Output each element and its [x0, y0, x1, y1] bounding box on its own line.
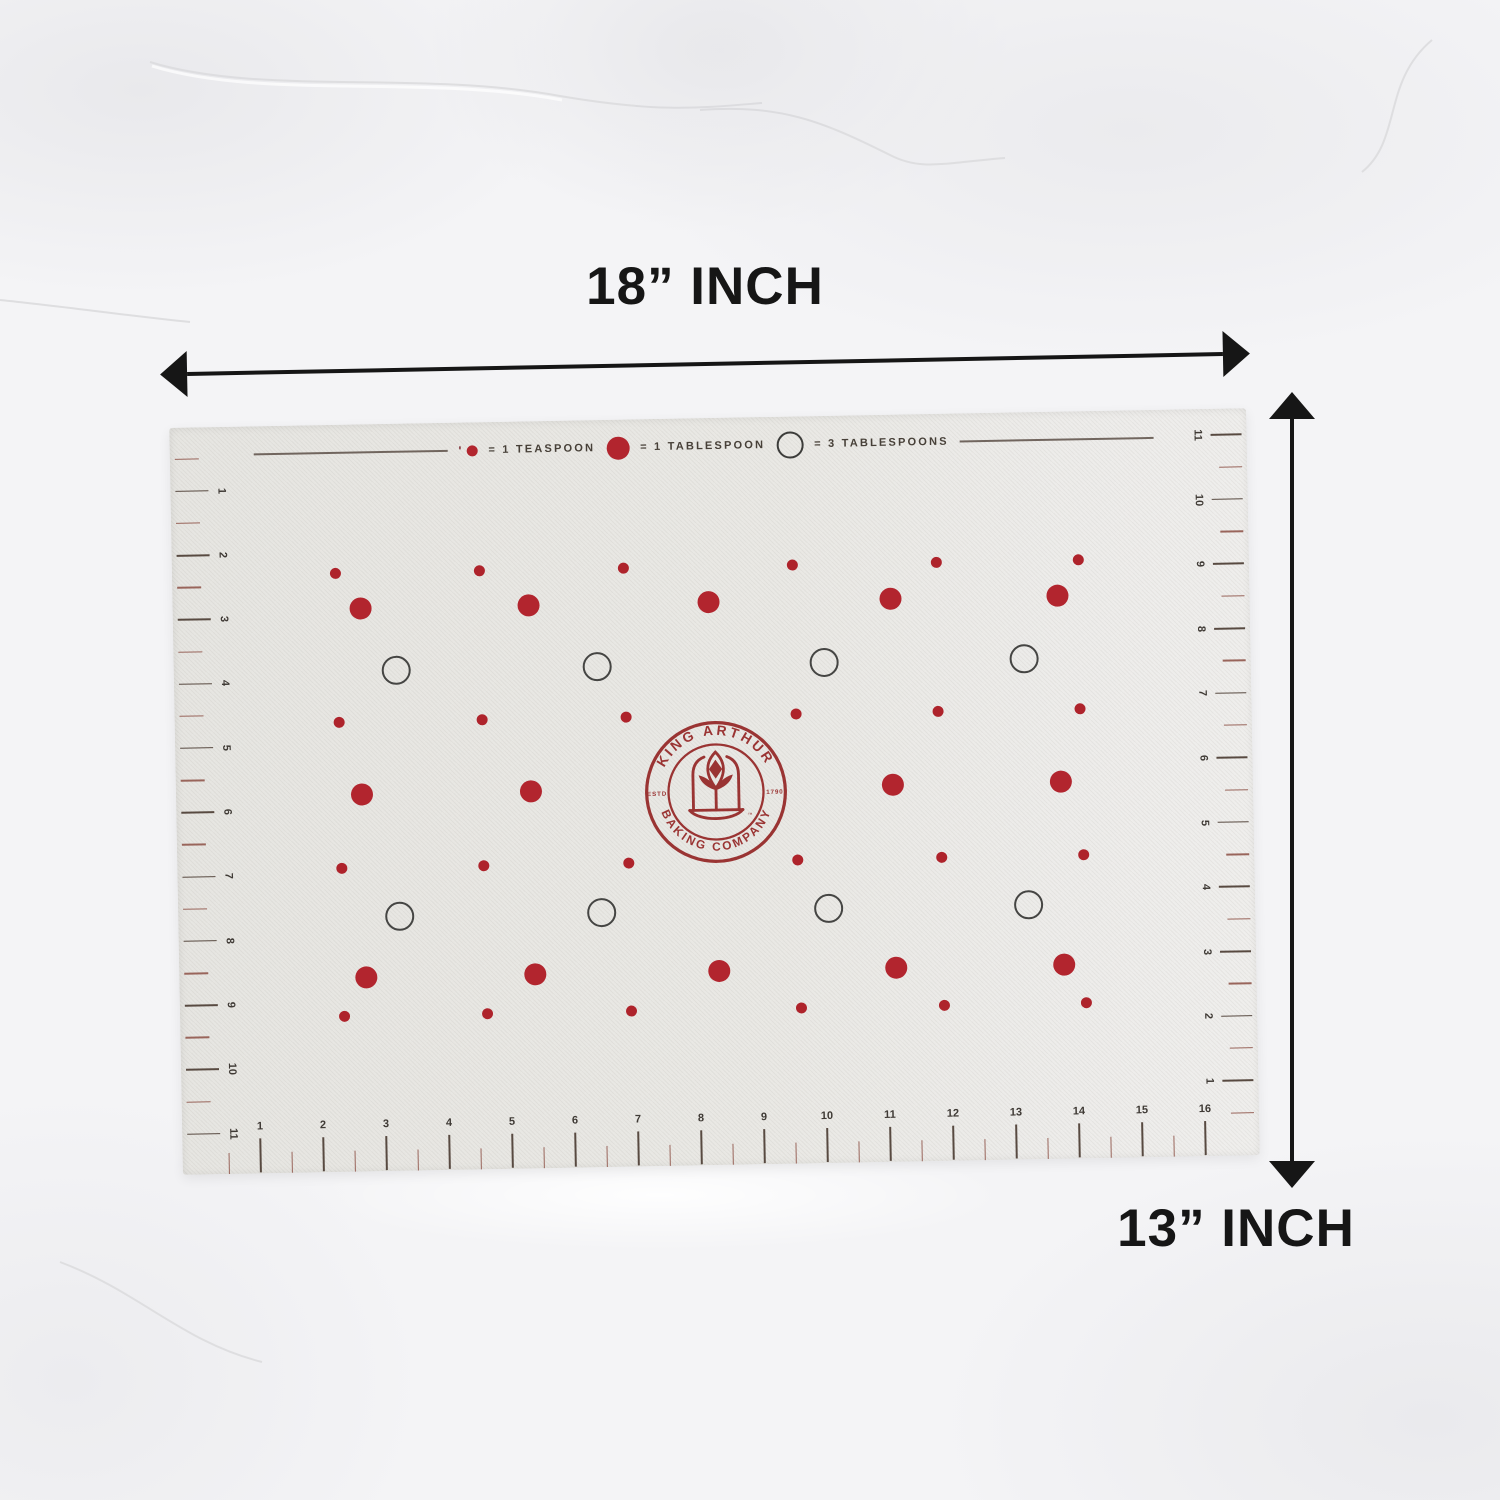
- ruler-number: 3: [1199, 943, 1215, 961]
- ruler-tick-minor: [185, 1037, 209, 1039]
- medium-dot: [524, 963, 546, 985]
- medium-dot: [517, 594, 539, 616]
- ruler-number: 7: [220, 867, 236, 885]
- ruler-tick-major: [187, 1133, 220, 1135]
- ruler-tick-minor: [732, 1144, 734, 1165]
- ruler-tick-minor: [1230, 1047, 1253, 1049]
- circle-dot: [1009, 644, 1039, 674]
- medium-dot: [355, 966, 377, 988]
- ruler-tick-minor: [176, 522, 200, 524]
- three-tablespoons-label: = 3 TABLESPOONS: [814, 436, 949, 450]
- ruler-number: 9: [755, 1109, 773, 1125]
- ruler-tick-minor: [1221, 595, 1244, 597]
- teaspoon-dot-icon: [466, 445, 477, 456]
- medium-dot: [1050, 770, 1072, 792]
- ruler-tick-minor: [480, 1148, 482, 1169]
- ruler-tick-major: [826, 1128, 828, 1162]
- ruler-tick-major: [1218, 821, 1249, 823]
- ruler-tick-minor: [291, 1152, 293, 1173]
- ruler-number: 7: [1194, 684, 1210, 702]
- medium-dot: [1053, 953, 1075, 975]
- small-dot: [625, 1005, 636, 1016]
- arrow-shaft: [1290, 419, 1294, 1161]
- ruler-tick-major: [1216, 756, 1247, 758]
- pastry-mat: ' = 1 TEASPOON = 1 TABLESPOON = 3 TABLES…: [169, 408, 1260, 1175]
- ruler-number: 2: [1200, 1007, 1216, 1025]
- ruler-number: 2: [214, 546, 230, 564]
- ruler-number: 7: [629, 1111, 647, 1127]
- medium-dot: [885, 956, 907, 978]
- small-dot: [476, 714, 487, 725]
- ruler-tick-minor: [1231, 1112, 1254, 1114]
- small-dot: [1080, 997, 1091, 1008]
- arrow-right-head-icon: [1222, 331, 1250, 378]
- ruler-tick-major: [323, 1137, 325, 1171]
- ruler-tick-major: [178, 619, 211, 621]
- ruler-tick-minor: [984, 1139, 986, 1160]
- ruler-tick-minor: [1219, 466, 1242, 468]
- ruler-tick-major: [574, 1133, 576, 1167]
- ruler-tick-minor: [183, 908, 207, 910]
- medium-dot: [520, 780, 542, 802]
- height-dimension-label: 13” INCH: [1090, 1198, 1382, 1259]
- ruler-number: 12: [944, 1106, 962, 1122]
- ruler-number: 4: [217, 674, 233, 692]
- ruler-tick-major: [1222, 1079, 1253, 1081]
- ruler-number: 11: [225, 1124, 241, 1142]
- ruler-tick-major: [181, 811, 214, 813]
- king-arthur-logo: KING ARTHUR BAKING COMPANY ESTD 1790 ™: [639, 715, 794, 870]
- logo-estd-text: ESTD: [647, 791, 667, 798]
- circle-dot: [586, 897, 616, 927]
- small-dot: [1072, 554, 1083, 565]
- ruler-tick-minor: [180, 715, 204, 717]
- ruler-tick-major: [180, 747, 213, 749]
- ruler-tick-minor: [1110, 1137, 1112, 1158]
- ruler-number: 8: [1193, 620, 1209, 638]
- ruler-tick-minor: [1224, 724, 1247, 726]
- product-photo-canvas: { "dimensions": { "width_label": "18\u20…: [0, 0, 1500, 1500]
- medium-dot: [882, 774, 904, 796]
- small-dot: [938, 999, 949, 1010]
- ruler-number: 5: [1196, 813, 1212, 831]
- ruler-tick-minor: [175, 458, 199, 460]
- ruler-tick-major: [182, 876, 215, 878]
- ruler-tick-minor: [1229, 983, 1252, 985]
- ruler-tick-major: [175, 490, 208, 492]
- ruler-number: 3: [216, 610, 232, 628]
- ruler-tick-major: [448, 1135, 450, 1169]
- small-dot: [936, 851, 947, 862]
- tablespoon-label: = 1 TABLESPOON: [640, 439, 765, 453]
- ruler-left: 1234567891011: [169, 408, 1246, 428]
- ruler-number: 2: [314, 1117, 332, 1133]
- small-dot: [336, 862, 347, 873]
- ruler-tick-major: [260, 1138, 262, 1172]
- small-dot: [930, 556, 941, 567]
- ruler-tick-major: [179, 683, 212, 685]
- ruler-tick-major: [511, 1134, 513, 1168]
- ruler-number: 6: [1195, 749, 1211, 767]
- ruler-number: 8: [221, 931, 237, 949]
- small-dot: [932, 705, 943, 716]
- ruler-number: 8: [692, 1110, 710, 1126]
- ruler-tick-major: [1015, 1125, 1017, 1159]
- ruler-number: 10: [224, 1060, 240, 1078]
- ruler-tick-major: [184, 940, 217, 942]
- ruler-tick-major: [1078, 1123, 1080, 1157]
- measurement-legend: ' = 1 TEASPOON = 1 TABLESPOON = 3 TABLES…: [254, 425, 1154, 467]
- ruler-number: 1: [213, 481, 229, 499]
- ruler-tick-major: [185, 1004, 218, 1006]
- ruler-tick-major: [637, 1131, 639, 1165]
- ruler-tick-minor: [543, 1147, 545, 1168]
- small-dot: [338, 1010, 349, 1021]
- ruler-number: 6: [566, 1112, 584, 1128]
- small-dot: [473, 565, 484, 576]
- ruler-tick-minor: [1047, 1138, 1049, 1159]
- ruler-tick-major: [1221, 1015, 1252, 1017]
- ruler-tick-major: [1214, 627, 1245, 629]
- ruler-bottom: 12345678910111213141516: [169, 408, 1246, 428]
- ruler-tick-minor: [228, 1153, 230, 1174]
- medium-dot: [351, 783, 373, 805]
- ruler-tick-minor: [1223, 660, 1246, 662]
- small-dot: [790, 708, 801, 719]
- ruler-tick-minor: [184, 972, 208, 974]
- small-dot: [795, 1002, 806, 1013]
- ruler-number: 4: [1198, 878, 1214, 896]
- legend-left-line: [254, 450, 448, 455]
- arrow-down-head-icon: [1269, 1161, 1315, 1188]
- medium-dot: [879, 588, 901, 610]
- circle-dot: [809, 647, 839, 677]
- ruler-number: 1: [1201, 1072, 1217, 1090]
- small-dot: [623, 857, 634, 868]
- ruler-tick-major: [386, 1136, 388, 1170]
- ruler-number: 1: [251, 1118, 269, 1134]
- logo-year-text: 1790: [766, 789, 784, 796]
- ruler-number: 11: [881, 1107, 899, 1123]
- ruler-tick-minor: [417, 1149, 419, 1170]
- ruler-tick-minor: [181, 779, 205, 781]
- height-dimension-arrow: [1266, 392, 1318, 1188]
- circle-dot: [582, 651, 612, 681]
- ruler-tick-major: [1204, 1121, 1206, 1155]
- ruler-number: 13: [1007, 1104, 1025, 1120]
- ruler-tick-minor: [187, 1101, 211, 1103]
- ruler-tick-minor: [1226, 853, 1249, 855]
- ruler-number: 11: [1189, 426, 1205, 444]
- ruler-number: 4: [440, 1115, 458, 1131]
- ruler-tick-minor: [177, 587, 201, 589]
- ruler-number: 5: [218, 738, 234, 756]
- circle-dot: [1013, 890, 1043, 920]
- ruler-number: 16: [1196, 1101, 1214, 1117]
- width-dimension-label: 18” INCH: [160, 256, 1250, 317]
- arrow-up-head-icon: [1269, 392, 1315, 419]
- tablespoon-dot-icon: [606, 436, 629, 459]
- arrow-shaft: [187, 352, 1223, 376]
- ruler-tick-minor: [354, 1151, 356, 1172]
- small-dot: [617, 562, 628, 573]
- legend-tick-mark: ': [458, 444, 461, 458]
- ruler-tick-major: [1212, 498, 1243, 500]
- ruler-tick-major: [177, 554, 210, 556]
- medium-dot: [349, 597, 371, 619]
- ruler-number: 9: [1192, 555, 1208, 573]
- ruler-tick-minor: [178, 651, 202, 653]
- medium-dot: [697, 591, 719, 613]
- ruler-tick-minor: [606, 1146, 608, 1167]
- ruler-number: 10: [1191, 491, 1207, 509]
- ruler-tick-minor: [921, 1140, 923, 1161]
- medium-dot: [1046, 584, 1068, 606]
- medium-dot: [708, 960, 730, 982]
- ruler-number: 10: [818, 1108, 836, 1124]
- ruler-tick-minor: [1173, 1136, 1175, 1157]
- ruler-tick-minor: [1220, 530, 1243, 532]
- ruler-tick-minor: [669, 1145, 671, 1166]
- ruler-tick-minor: [182, 844, 206, 846]
- ruler-tick-major: [1219, 886, 1250, 888]
- ruler-right: 1110987654321: [169, 408, 1246, 428]
- circle-dot: [384, 901, 414, 931]
- arrow-left-head-icon: [160, 351, 188, 398]
- ruler-tick-major: [1211, 434, 1242, 436]
- ruler-number: 9: [223, 996, 239, 1014]
- ruler-number: 6: [219, 803, 235, 821]
- ruler-tick-major: [700, 1130, 702, 1164]
- ruler-tick-minor: [795, 1143, 797, 1164]
- ruler-tick-major: [889, 1127, 891, 1161]
- ruler-tick-major: [1215, 692, 1246, 694]
- ruler-number: 14: [1070, 1103, 1088, 1119]
- ruler-tick-major: [952, 1126, 954, 1160]
- ruler-number: 3: [377, 1116, 395, 1132]
- measuring-dot-grid: [169, 408, 1246, 428]
- circle-dot: [381, 655, 411, 685]
- small-dot: [478, 860, 489, 871]
- ruler-number: 5: [503, 1114, 521, 1130]
- ruler-tick-minor: [1227, 918, 1250, 920]
- circle-dot: [813, 893, 843, 923]
- small-dot: [1074, 703, 1085, 714]
- ruler-tick-major: [763, 1129, 765, 1163]
- small-dot: [620, 711, 631, 722]
- ruler-tick-minor: [858, 1141, 860, 1162]
- ruler-number: 15: [1133, 1102, 1151, 1118]
- width-dimension-arrow: [160, 331, 1251, 398]
- small-dot: [333, 716, 344, 727]
- teaspoon-label: = 1 TEASPOON: [488, 442, 595, 456]
- ruler-tick-minor: [1225, 789, 1248, 791]
- small-dot: [786, 559, 797, 570]
- ruler-tick-major: [1141, 1122, 1143, 1156]
- logo-trademark: ™: [748, 812, 753, 818]
- ruler-tick-major: [186, 1069, 219, 1071]
- small-dot: [329, 567, 340, 578]
- legend-right-line: [960, 437, 1154, 442]
- ruler-tick-major: [1220, 950, 1251, 952]
- three-tablespoons-circle-icon: [776, 431, 803, 458]
- small-dot: [1078, 849, 1089, 860]
- ruler-tick-major: [1213, 563, 1244, 565]
- small-dot: [481, 1008, 492, 1019]
